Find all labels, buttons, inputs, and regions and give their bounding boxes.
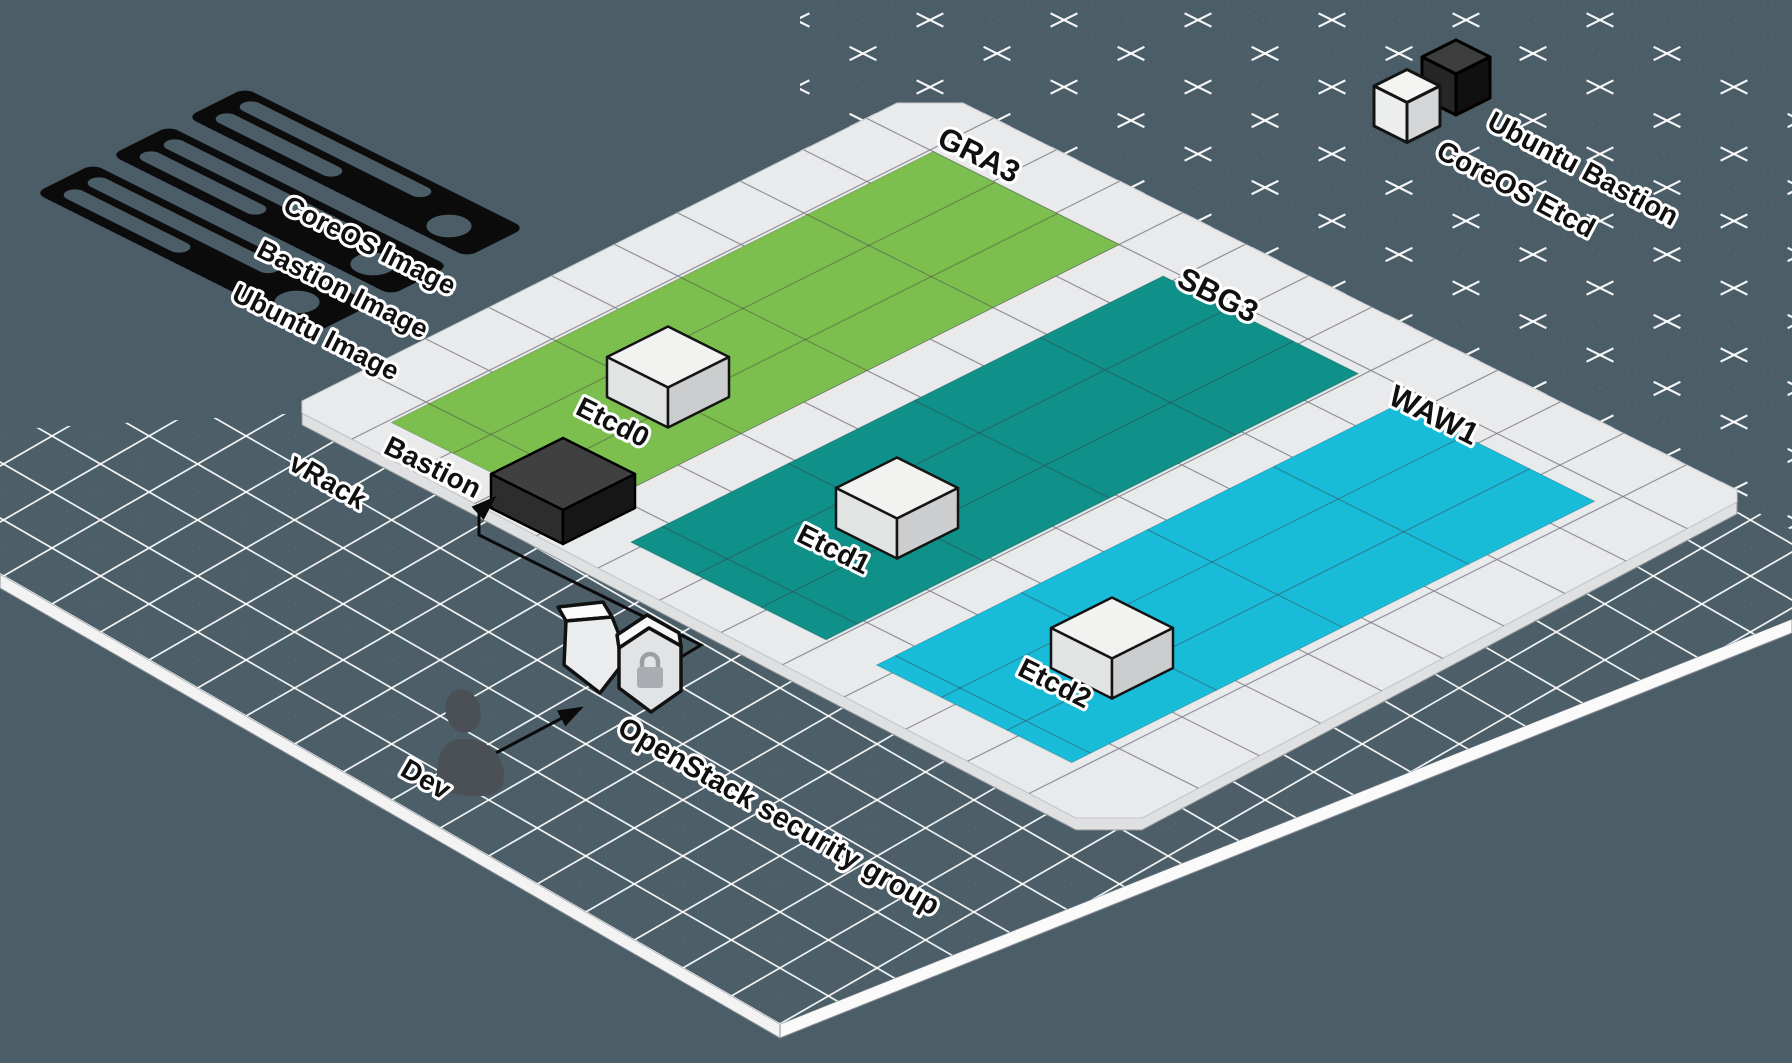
diagram-canvas: GRA3 SBG3 WAW1 Etcd0 Etcd1 Etcd2 Bastion… [0, 0, 1792, 1063]
legend-cube-white [1374, 70, 1440, 143]
diagram-stage: GRA3 SBG3 WAW1 Etcd0 Etcd1 Etcd2 Bastion… [0, 0, 1792, 1063]
